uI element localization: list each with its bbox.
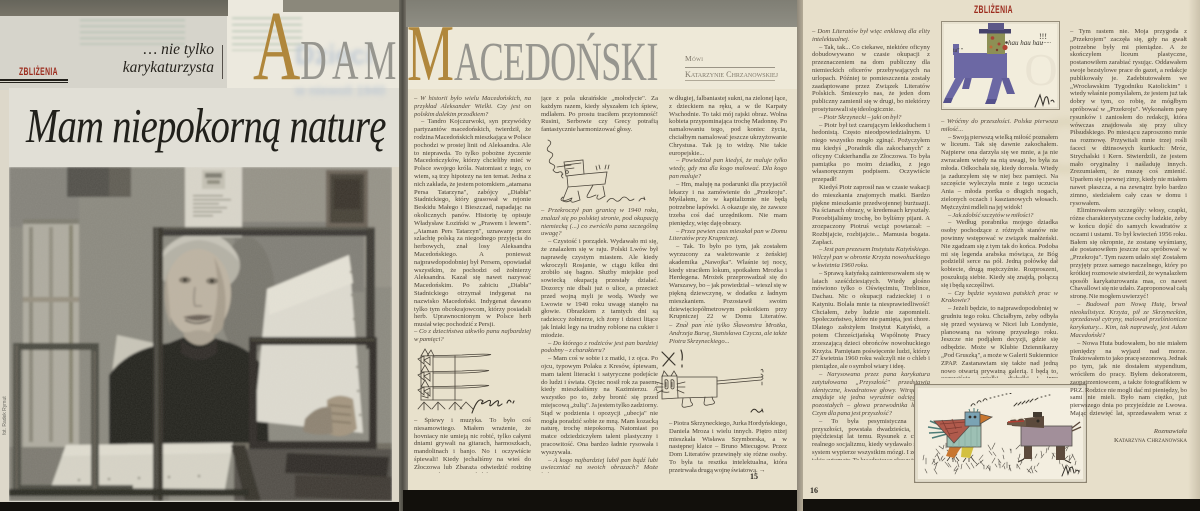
svg-text:O: O xyxy=(1024,44,1057,95)
svg-text:!!!: !!! xyxy=(1039,32,1047,41)
svg-text:ta'' '': ta'' '' xyxy=(953,48,963,54)
